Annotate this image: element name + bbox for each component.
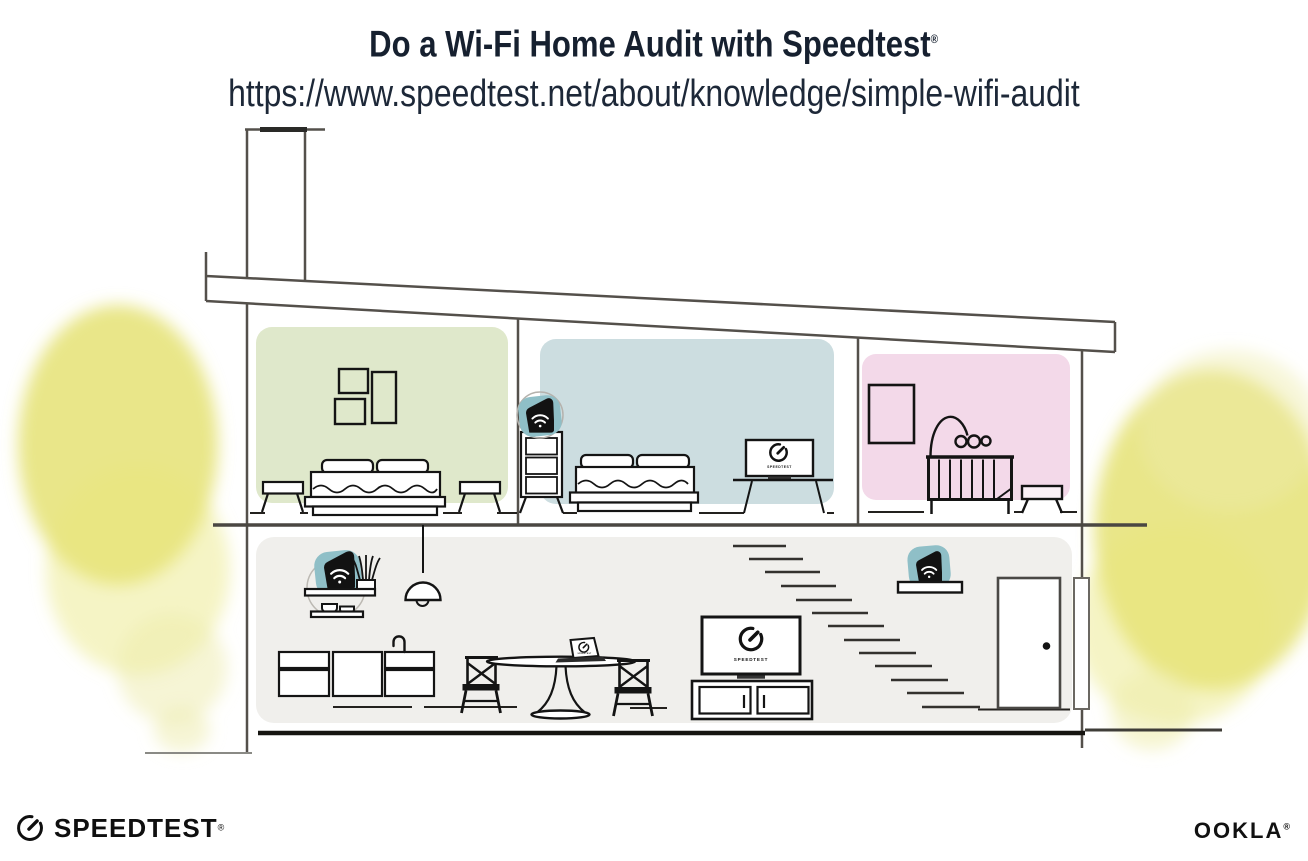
tree-left [18, 305, 230, 752]
front-door-icon [998, 578, 1060, 708]
bed-icon [570, 455, 698, 511]
speedtest-logo: SPEEDTEST® [14, 812, 224, 844]
tv-living-room-icon: SPEEDTEST [702, 617, 800, 679]
registered-trademark: ® [218, 822, 225, 832]
speedtest-wordmark: SPEEDTEST [54, 813, 218, 843]
tv-screen-label: SPEEDTEST [767, 465, 792, 469]
tv-screen-label: SPEEDTEST [734, 657, 769, 662]
room-bg-nursery [862, 354, 1070, 500]
tree-right [1075, 350, 1308, 750]
ookla-logo: OOKLA® [1194, 818, 1292, 844]
registered-trademark: ® [1283, 822, 1292, 832]
wall-shelf-upper [305, 589, 375, 596]
speedtest-gauge-icon [14, 812, 46, 844]
wifi-router-bedroom [517, 392, 563, 438]
ookla-wordmark: OOKLA [1194, 818, 1283, 843]
house-illustration: SPEEDTEST [0, 0, 1308, 861]
media-console-icon [692, 681, 812, 719]
door-knob [1043, 642, 1051, 650]
stairs-shelf [898, 582, 962, 593]
door-frame-column [1074, 578, 1089, 709]
stool-icon [1022, 486, 1062, 513]
laptop-screen-label: SPEEDTEST [578, 653, 592, 655]
wall-shelf-lower [311, 612, 363, 618]
chimney [245, 130, 325, 282]
